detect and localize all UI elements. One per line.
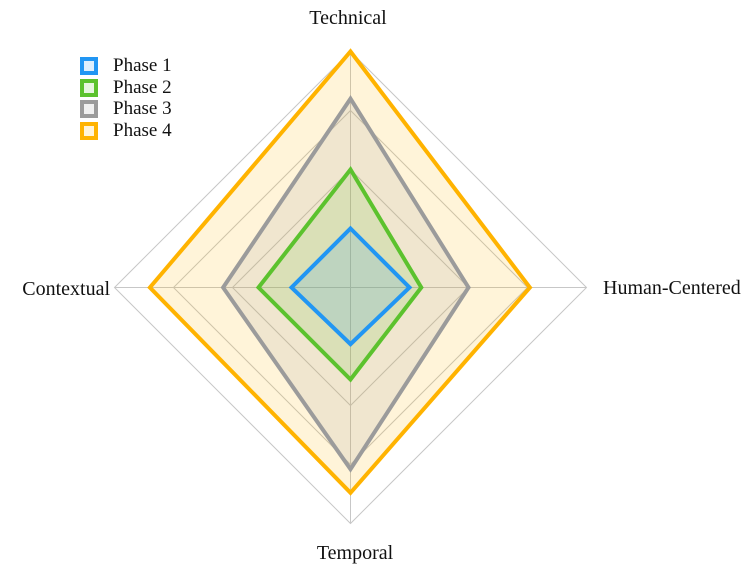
legend-label: Phase 1 xyxy=(113,57,172,75)
legend-item-phase-2: Phase 2 xyxy=(80,79,172,97)
axis-label-technical: Technical xyxy=(309,7,386,29)
axis-label-temporal: Temporal xyxy=(317,542,393,564)
legend-item-phase-3: Phase 3 xyxy=(80,100,172,118)
axis-label-contextual: Contextual xyxy=(22,278,110,300)
legend-item-phase-1: Phase 1 xyxy=(80,57,172,75)
legend-swatch-phase-1 xyxy=(80,57,98,75)
legend-swatch-phase-4 xyxy=(80,122,98,140)
legend-item-phase-4: Phase 4 xyxy=(80,122,172,140)
legend-swatch-phase-3 xyxy=(80,100,98,118)
legend: Phase 1Phase 2Phase 3Phase 4 xyxy=(80,57,172,143)
radar-figure: Technical Human-Centered Contextual Temp… xyxy=(0,0,747,587)
legend-label: Phase 4 xyxy=(113,122,172,140)
legend-label: Phase 3 xyxy=(113,100,172,118)
legend-swatch-phase-2 xyxy=(80,79,98,97)
axis-label-human-centered: Human-Centered xyxy=(603,277,741,299)
legend-label: Phase 2 xyxy=(113,79,172,97)
